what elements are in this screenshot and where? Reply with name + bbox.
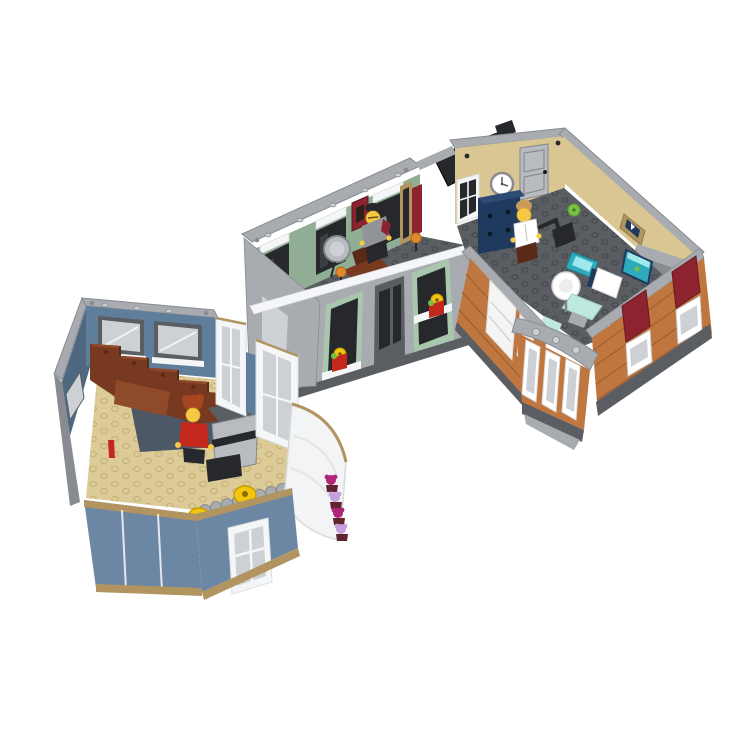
window bbox=[457, 174, 479, 224]
candle bbox=[108, 440, 115, 458]
fish-icon bbox=[635, 267, 640, 272]
door-knob bbox=[543, 170, 547, 174]
silver-door bbox=[520, 144, 548, 200]
wall-lamp bbox=[556, 141, 561, 146]
window bbox=[152, 321, 204, 367]
door-frame-white bbox=[216, 318, 246, 416]
product-photo-canvas bbox=[0, 0, 750, 750]
wall-clock bbox=[491, 173, 513, 195]
plant bbox=[568, 204, 580, 216]
wall-lamp bbox=[465, 154, 470, 159]
lego-modular-rooms-illustration bbox=[0, 0, 750, 750]
